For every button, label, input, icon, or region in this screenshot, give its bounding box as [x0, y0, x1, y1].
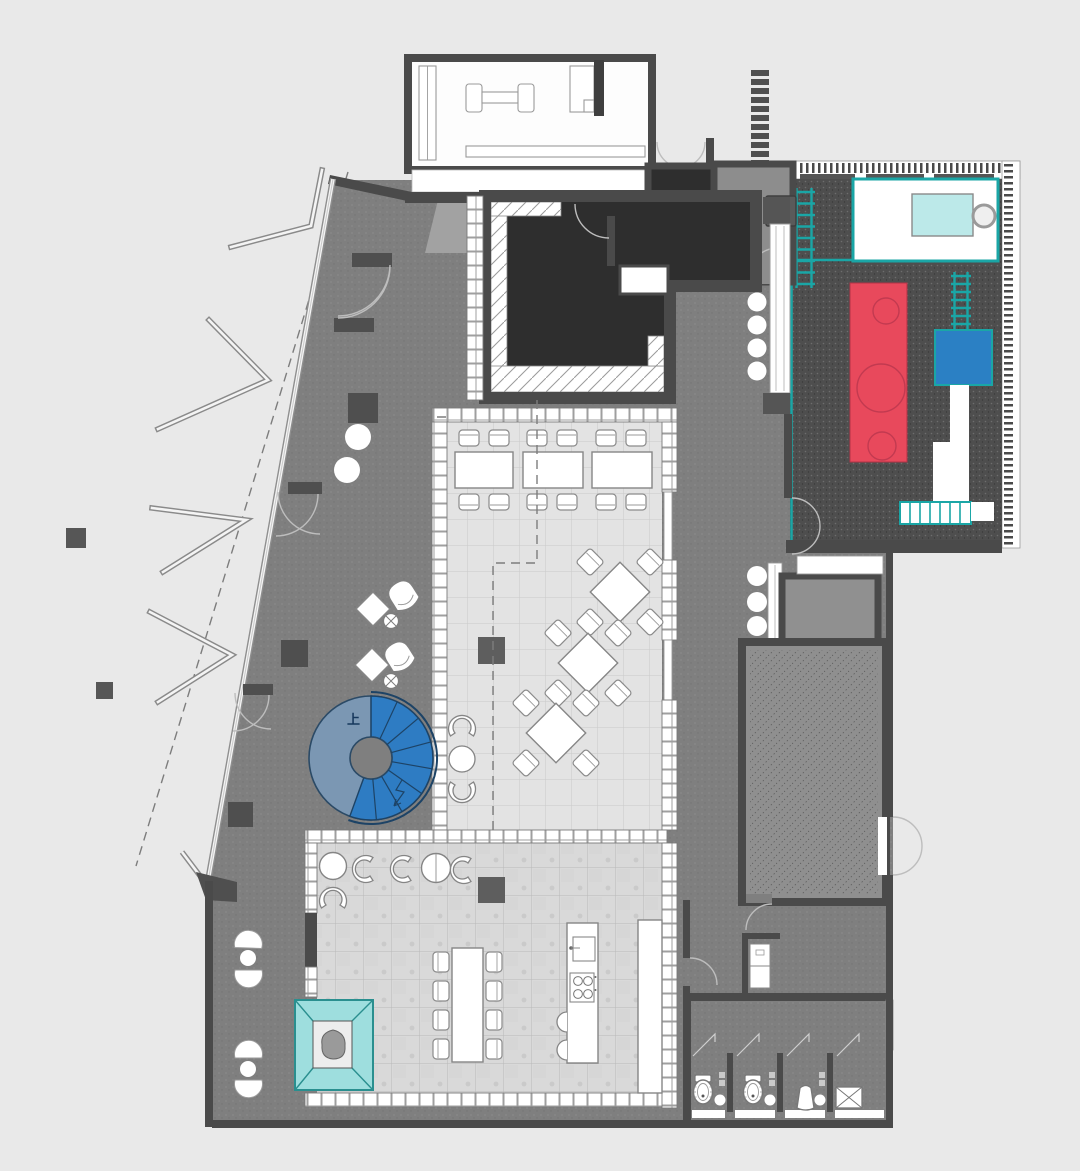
fitness-bench	[466, 146, 645, 157]
trampoline	[912, 194, 973, 236]
canopy-fin	[150, 612, 232, 702]
urinal	[797, 1086, 814, 1111]
column	[348, 393, 378, 423]
column	[478, 877, 505, 903]
floor-plan-drawing: 上	[0, 0, 1080, 1171]
planter-circle	[747, 592, 767, 612]
planter-circle	[747, 616, 767, 636]
nook-table	[240, 1061, 256, 1077]
column	[281, 640, 308, 667]
column-band	[432, 408, 677, 422]
kitchen-area	[295, 830, 677, 1108]
column-band	[662, 560, 677, 640]
door-jamb	[352, 253, 392, 267]
dining-chair	[489, 430, 509, 446]
wall-block	[763, 393, 790, 414]
restroom-wall	[683, 993, 886, 1001]
dining-table	[455, 452, 513, 488]
fence-rail	[800, 174, 855, 179]
wall-segment	[305, 913, 317, 967]
terrace-fence-top-ticks	[792, 163, 1018, 175]
planter-circle	[334, 457, 360, 483]
south-wall	[212, 1120, 893, 1128]
east-wall	[886, 545, 893, 817]
toilet	[744, 1075, 763, 1104]
stall-partition	[827, 1053, 833, 1112]
glazing-panel	[664, 640, 672, 700]
glazing-panel	[664, 492, 672, 560]
utility-room	[782, 576, 878, 642]
desk-partition-wall	[594, 60, 604, 116]
shower-drain	[836, 1087, 862, 1108]
side-table-round	[384, 674, 399, 689]
bin	[815, 1095, 826, 1106]
column-band	[662, 422, 677, 492]
shoe-shelf-band	[491, 202, 507, 392]
column-band	[432, 422, 447, 830]
site-marker-block	[66, 528, 86, 548]
corridor-wall	[784, 414, 792, 498]
stall-partition	[727, 1053, 733, 1112]
terrace-fence-right-ticks	[1004, 163, 1016, 546]
dining-chair	[486, 952, 502, 972]
door-jamb	[288, 482, 322, 494]
terrace-path	[933, 442, 969, 502]
service-hatch	[620, 266, 668, 294]
dining-chair	[557, 494, 577, 510]
column	[478, 637, 505, 664]
west-wall	[205, 881, 213, 1127]
column-band	[305, 967, 317, 997]
dining-chair	[557, 430, 577, 446]
evacuation-ladder-symbol	[751, 70, 769, 166]
dining-chair	[433, 981, 449, 1001]
blue-play-cube	[935, 330, 992, 385]
service-rooms	[742, 556, 922, 930]
stall-partition	[777, 1053, 783, 1112]
cooktop	[570, 973, 597, 1002]
exit-door-swing	[893, 846, 922, 875]
dining-chair	[459, 430, 479, 446]
stair-well	[350, 737, 392, 779]
round-chair	[320, 853, 347, 880]
thresholds	[692, 1110, 884, 1118]
dining-chair	[626, 430, 646, 446]
terrace-path	[950, 385, 969, 442]
red-play-structure	[850, 283, 907, 462]
side-table-round	[384, 614, 399, 629]
dining-chair	[433, 952, 449, 972]
entry-deck	[412, 170, 648, 192]
wall-block	[763, 197, 790, 224]
bar-counter	[638, 920, 662, 1093]
interior-wall-stub	[607, 216, 615, 266]
shoe-shelf-band	[648, 336, 664, 366]
dining-chair	[596, 430, 616, 446]
bin	[765, 1095, 776, 1106]
desk-return	[584, 100, 594, 112]
door-jamb	[334, 318, 374, 332]
dining-chair	[433, 1010, 449, 1030]
dining-chair	[596, 494, 616, 510]
dining-chair	[459, 494, 479, 510]
floor-plan-canvas: 上	[0, 0, 1080, 1171]
dining-table	[592, 452, 652, 488]
toilet	[694, 1075, 713, 1104]
site-marker-block	[96, 682, 113, 699]
corridor-wall	[683, 900, 690, 958]
canopy-fin	[231, 170, 322, 247]
column-band	[662, 700, 677, 830]
seat-cushion	[322, 1030, 345, 1059]
bin	[715, 1095, 726, 1106]
restroom-wall	[683, 993, 691, 1120]
exit-door-swing	[893, 817, 922, 846]
door-opening	[746, 894, 772, 903]
column-band	[662, 843, 677, 1108]
column-band	[305, 1093, 667, 1107]
dining-chair	[433, 1039, 449, 1059]
door-jamb	[243, 684, 273, 695]
round-table	[449, 746, 475, 772]
stair-up-label: 上	[347, 713, 360, 728]
column-band	[305, 843, 317, 913]
hatched-storage-room	[742, 642, 922, 930]
dining-chair	[486, 1010, 502, 1030]
planter-circle	[747, 566, 767, 586]
dining-chair	[486, 981, 502, 1001]
shoe-shelf-band	[491, 202, 561, 216]
column	[228, 802, 253, 827]
terrace-bottom-wall	[786, 540, 1002, 553]
walkway	[797, 556, 883, 574]
dining-chair	[486, 1039, 502, 1059]
east-wall	[886, 875, 893, 1127]
sink	[573, 937, 595, 961]
column-band	[305, 830, 667, 843]
corridor-wall	[683, 986, 690, 1001]
shoe-shelf-band	[491, 366, 664, 392]
outdoor-play-terrace	[786, 161, 1020, 553]
canopy-fin	[152, 508, 246, 572]
dining-table	[523, 452, 583, 488]
nook-table	[240, 950, 256, 966]
dining-chair	[626, 494, 646, 510]
play-ring	[973, 205, 995, 227]
terrace-steps	[900, 502, 994, 524]
teal-canopy-seat	[295, 1000, 373, 1090]
family-dining-table	[452, 948, 483, 1062]
glazing-panel	[770, 224, 790, 393]
planter-circle	[345, 424, 371, 450]
canopy-fin	[158, 320, 268, 429]
dining-chair	[489, 494, 509, 510]
door-opening	[878, 817, 887, 875]
column-band	[467, 196, 483, 400]
